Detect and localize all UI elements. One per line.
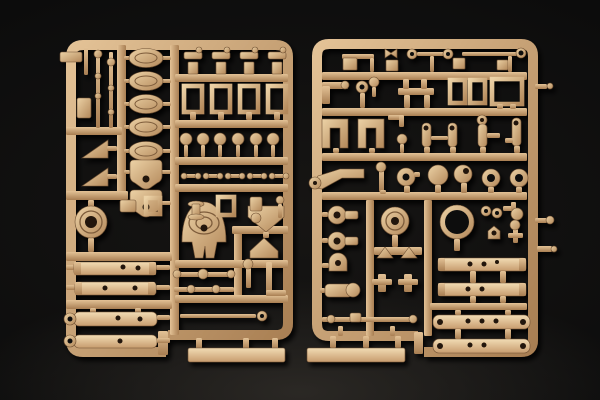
sprue-gate [510, 104, 516, 109]
sprue-gate [74, 262, 81, 275]
plastic-part [386, 60, 398, 71]
sprue-gate [266, 290, 286, 296]
part-hole [143, 176, 150, 183]
ring-hole [495, 211, 499, 215]
sprue-gate [157, 315, 170, 320]
sprue-gate [390, 326, 395, 336]
part-hole [466, 319, 471, 324]
sprue-gate [488, 187, 494, 193]
round-part [327, 315, 335, 323]
round-part [280, 47, 286, 53]
ring-hole [403, 174, 410, 181]
part-hole [136, 266, 141, 271]
part-hole [463, 168, 469, 174]
axle-bar-part [75, 282, 156, 295]
round-part [276, 196, 284, 204]
torsion-bar-part [74, 312, 157, 326]
sprue-gate [330, 336, 336, 348]
plastic-part [120, 200, 136, 212]
sprue-gate [271, 145, 275, 157]
part-hole [480, 118, 484, 122]
sprue-gate [372, 279, 392, 285]
round-part [227, 270, 235, 278]
sprue-gate [180, 314, 256, 318]
part-hole [116, 316, 121, 321]
part-hole [520, 319, 526, 325]
part-hole [138, 317, 143, 322]
sprue-gate [88, 238, 94, 252]
part-hole [85, 216, 97, 228]
round-part [510, 220, 520, 230]
ring-hole [410, 52, 414, 56]
sprue-rail [322, 192, 527, 200]
sprue-gate [162, 149, 171, 153]
sprue-gate [320, 288, 325, 293]
axle-bar-part [74, 262, 156, 275]
sprue-gate [462, 52, 517, 56]
sprue-gate [338, 326, 343, 336]
sprue-gate [156, 265, 170, 270]
plastic-part [216, 62, 226, 74]
round-part [196, 47, 202, 53]
ring-hole [445, 210, 469, 234]
sprue-gate [157, 338, 170, 343]
part-hole [334, 212, 341, 219]
sprue-gate [399, 115, 404, 127]
ring-hole [260, 314, 264, 318]
round-part [243, 259, 253, 269]
sprue-photo-svg [0, 0, 600, 400]
sprue-gate [124, 170, 130, 174]
sprue-gate [107, 146, 117, 151]
part-hole [313, 181, 317, 185]
dome-part [454, 165, 472, 183]
sprue-gate [403, 79, 409, 89]
sprue-gate [107, 174, 117, 179]
sprue-gate [505, 310, 511, 315]
sprue-rail [175, 184, 288, 192]
sprue-rail [66, 252, 172, 261]
sprue-gate [450, 147, 456, 153]
part-hole [424, 126, 429, 131]
sprue-gate [218, 145, 222, 157]
sprue-gate [404, 95, 410, 108]
part-hole [103, 286, 108, 291]
plastic-part [345, 237, 358, 245]
round-part [95, 93, 101, 99]
sprue-gate [424, 95, 430, 108]
round-part [250, 133, 262, 145]
plastic-part [497, 60, 508, 70]
sprue-gate [236, 145, 240, 157]
round-part [107, 58, 115, 66]
plastic-part [250, 197, 262, 211]
plastic-part [77, 98, 91, 118]
sprue-gate [537, 246, 552, 252]
plastic-part [60, 52, 82, 62]
bottom-strip-part [307, 348, 405, 362]
round-part [203, 173, 209, 179]
part-hole [492, 231, 497, 236]
sprue-gate [246, 266, 251, 288]
round-part [547, 83, 553, 89]
part-hole [480, 319, 485, 324]
sprue-gate [505, 329, 511, 339]
sprue-gate [404, 186, 410, 193]
sprue-gate [500, 296, 506, 303]
part-hole [118, 339, 123, 344]
sprue-gate [455, 329, 461, 339]
ring-hole [360, 85, 365, 90]
ring-hole [68, 317, 73, 322]
sprue-gate [455, 310, 461, 315]
part-hole [468, 262, 473, 267]
sprue-gate [184, 145, 188, 157]
sprue-gate [435, 185, 441, 193]
sprue-gate [174, 287, 234, 292]
sprue-gate [66, 265, 74, 270]
round-part [198, 269, 208, 279]
sprue-gate [190, 112, 196, 120]
sprue-gate [414, 332, 423, 354]
round-part [108, 109, 114, 115]
part-hole [437, 319, 443, 325]
part-hole [520, 343, 526, 349]
sprue-rail [66, 300, 172, 309]
sprue-gate [421, 79, 427, 89]
sprue-gate [274, 112, 280, 120]
sprue-gate [272, 338, 278, 349]
sprue-gate [218, 112, 224, 120]
round-part [269, 173, 275, 179]
periscope-pod-part [129, 72, 163, 91]
sprue-gate [149, 262, 156, 275]
sprue-gate [470, 296, 476, 303]
sprue-gate [66, 285, 75, 290]
part-hole [450, 126, 455, 131]
round-part [180, 133, 192, 145]
sprue-gate [505, 138, 513, 143]
part-hole [495, 260, 499, 264]
periscope-pod-part [129, 49, 163, 68]
sprue-rail [322, 153, 527, 161]
sprue-gate [84, 47, 88, 75]
sprue-gate [519, 283, 526, 296]
round-part [369, 77, 379, 87]
round-part [239, 173, 245, 179]
sprue-gate [322, 263, 329, 268]
sprue-gate [497, 104, 503, 109]
sprue-rail [175, 74, 288, 82]
round-part [511, 208, 523, 220]
periscope-pod-part [129, 118, 163, 137]
plastic-part [478, 124, 487, 147]
sprue-rail [424, 200, 432, 336]
sprue-gate [162, 125, 171, 129]
sprue-gate [535, 84, 547, 89]
sprue-gate [508, 233, 523, 238]
sprue-gate [500, 271, 506, 283]
sprue-gate [417, 52, 444, 56]
part-hole [468, 343, 473, 348]
sprue-gate [96, 50, 100, 128]
sprue-gate [243, 338, 249, 349]
sprue-gate [519, 258, 526, 271]
sprue-gate [514, 146, 520, 153]
sprue-gate [156, 285, 170, 290]
sprue-gate [430, 56, 434, 72]
sprue-rail [66, 191, 128, 200]
round-part [397, 134, 407, 144]
ring-hole [68, 339, 73, 344]
sprue-rail [322, 108, 527, 116]
periscope-pod-part [129, 142, 163, 161]
sprue-gate [201, 145, 205, 157]
ring-hole [484, 209, 488, 213]
sprue-gate [438, 283, 445, 296]
sprue-gate [454, 239, 460, 251]
sprue-gate [322, 86, 330, 104]
round-part [251, 213, 261, 223]
sprue-gate [395, 336, 401, 348]
round-part [224, 47, 230, 53]
sprue-gate [398, 279, 418, 285]
plastic-part [188, 62, 198, 74]
sprue-gate [254, 145, 258, 157]
round-part [546, 216, 554, 224]
sprue-gate [246, 112, 252, 120]
part-hole [391, 217, 399, 225]
plastic-part [453, 58, 465, 69]
part-hole [121, 265, 126, 270]
part-hole [201, 225, 208, 232]
round-part [95, 73, 101, 79]
part-hole [480, 287, 485, 292]
sprue-gate [162, 79, 171, 83]
sprue-gate [380, 190, 386, 194]
sprue-gate [278, 204, 282, 218]
round-part [108, 85, 114, 91]
round-part [225, 173, 231, 179]
sprue-gate [438, 258, 445, 271]
ring-hole [446, 52, 450, 56]
sprue-rail [366, 200, 374, 336]
sprue-gate [75, 282, 82, 295]
round-part [267, 133, 279, 145]
part-hole [482, 262, 487, 267]
sprue-gate [360, 93, 365, 108]
part-hole [514, 121, 519, 126]
sprue-gate [322, 212, 328, 217]
sprue-gate [379, 169, 384, 192]
sprue-gate [162, 102, 171, 106]
round-part [212, 285, 220, 293]
round-part [181, 173, 187, 179]
part-hole [335, 260, 341, 266]
sprue-gate [487, 133, 500, 138]
part-hole [482, 343, 487, 348]
sprue-rail [430, 303, 527, 310]
sprue-gate [508, 56, 512, 72]
sprue-gate [400, 144, 404, 153]
sprue-gate [363, 336, 369, 348]
sprue-gate [480, 147, 486, 153]
sprue-gate [370, 58, 374, 72]
plastic-part [272, 62, 282, 74]
sprue-rail [175, 157, 288, 165]
round-part [173, 270, 181, 278]
round-part [341, 81, 349, 89]
sprue-rail [175, 120, 288, 128]
round-part [217, 173, 223, 179]
sprue-gate [322, 238, 328, 243]
round-part [283, 173, 289, 179]
part-hole [133, 286, 138, 291]
sprue-gate [424, 147, 430, 153]
sprue-gate [161, 170, 171, 174]
round-part [409, 315, 417, 323]
round-part [247, 173, 253, 179]
sprue-gate [322, 317, 414, 322]
sprue-gate [535, 218, 547, 223]
sprue-gate [333, 148, 339, 153]
sprue-gate [470, 271, 476, 283]
plastic-part [350, 313, 361, 322]
sprue-rail [175, 295, 288, 303]
ring-hole [515, 174, 523, 182]
round-part [252, 47, 258, 53]
sprue-gate [369, 148, 375, 153]
plastic-part [244, 62, 254, 74]
round-part [94, 50, 102, 58]
part-hole [334, 238, 341, 245]
ring-hole [519, 51, 524, 56]
round-part [551, 246, 557, 252]
sprue-gate [414, 172, 420, 177]
sprue-gate [398, 88, 434, 95]
product-photo [0, 0, 600, 400]
ring-hole [487, 174, 495, 182]
round-part [195, 173, 201, 179]
torsion-bar-part [74, 335, 157, 348]
bottom-strip-part [188, 348, 285, 362]
part-hole [466, 287, 471, 292]
round-part [187, 285, 195, 293]
round-part [346, 283, 360, 297]
dome-part [428, 165, 448, 185]
sprue-gate [461, 183, 467, 193]
round-part [214, 133, 226, 145]
round-part [232, 133, 244, 145]
sprue-rail [66, 127, 122, 135]
sprue-gate [162, 56, 171, 60]
torsion-bar-part [433, 339, 530, 353]
sprue-gate [263, 232, 269, 238]
round-part [261, 173, 267, 179]
periscope-pod-part [129, 95, 163, 114]
sprue-gate [431, 136, 448, 140]
plastic-part [345, 211, 358, 219]
sprue-gate [516, 187, 522, 193]
part-hole [494, 319, 499, 324]
oval-part [188, 214, 204, 220]
sprue-gate [148, 282, 155, 295]
round-part [376, 162, 386, 172]
round-part [197, 133, 209, 145]
sprue-gate [372, 87, 376, 97]
part-hole [437, 343, 443, 349]
sprue-gate [392, 235, 398, 247]
plastic-part [343, 58, 357, 70]
sprue-gate [196, 338, 202, 349]
sprue-gate [161, 201, 171, 205]
